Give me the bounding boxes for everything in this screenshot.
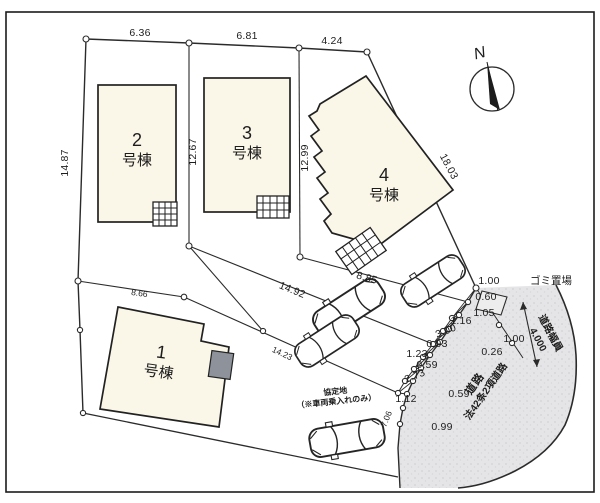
dim-label: 1.05 [473,307,494,319]
dim-label: 0.26 [481,346,502,358]
porch-grid-building-2 [153,202,177,226]
dim-label: 1.00 [478,275,499,287]
dim-label: 1.00 [503,333,524,345]
dim-label: 0.60 [475,291,496,303]
dim-label: 6.36 [129,27,150,39]
dim-label: 14.87 [59,149,71,176]
porch-grid-building-3 [257,196,289,218]
dim-label: 1.12 [395,393,416,405]
dim-label: 4.24 [321,35,342,47]
site-plan-figure: 2 号棟 3 号棟 4 号棟 1 号棟 [0,0,600,503]
building-4-suffix: 号棟 [369,187,399,204]
dim-label: 0.93 [426,338,447,350]
dim-label: 12.67 [187,138,199,165]
site-plan-svg: 2 号棟 3 号棟 4 号棟 1 号棟 [0,0,600,503]
building-2-number: 2 [132,130,142,150]
building-3-suffix: 号棟 [232,145,262,162]
building-2-suffix: 号棟 [122,152,152,169]
dim-label: 12.99 [299,144,311,171]
building-3-number: 3 [242,123,252,143]
utility-box-building-1 [208,351,233,380]
building-4-number: 4 [379,165,389,185]
dim-label: 6.81 [236,30,257,42]
dim-label: 0.99 [431,421,452,433]
garbage-area-label: ゴミ置場 [530,274,572,287]
